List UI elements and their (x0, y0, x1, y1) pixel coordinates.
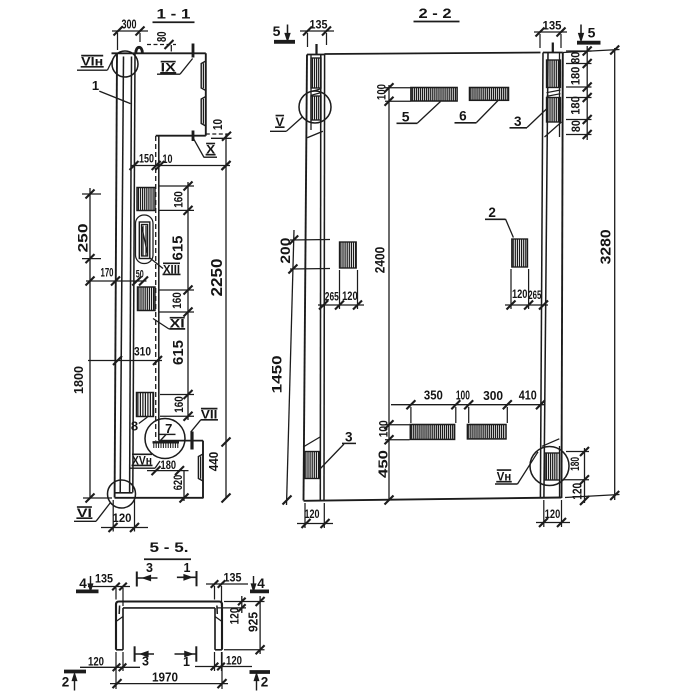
svg-text:120: 120 (305, 507, 320, 521)
svg-text:10: 10 (163, 152, 173, 166)
svg-text:3: 3 (514, 114, 522, 129)
svg-text:5: 5 (588, 24, 596, 40)
svg-text:120: 120 (88, 655, 104, 669)
svg-text:1970: 1970 (152, 670, 178, 685)
svg-text:300: 300 (122, 18, 137, 32)
svg-text:1800: 1800 (71, 366, 86, 394)
svg-text:160: 160 (170, 292, 184, 309)
svg-text:1: 1 (92, 78, 99, 93)
svg-text:1 - 1: 1 - 1 (157, 7, 192, 22)
svg-text:80: 80 (568, 52, 582, 64)
svg-text:180: 180 (568, 96, 582, 115)
svg-text:160: 160 (172, 191, 186, 208)
svg-text:3: 3 (146, 561, 153, 575)
svg-text:2: 2 (62, 675, 70, 690)
svg-text:3280: 3280 (597, 229, 614, 264)
svg-text:5 - 5.: 5 - 5. (150, 540, 189, 555)
svg-text:6: 6 (459, 108, 467, 123)
svg-text:160: 160 (172, 396, 186, 413)
svg-text:80: 80 (569, 120, 583, 132)
svg-text:8: 8 (131, 419, 138, 434)
svg-text:925: 925 (246, 612, 260, 632)
svg-text:615: 615 (171, 236, 187, 261)
svg-text:180: 180 (570, 457, 582, 471)
svg-text:5: 5 (402, 108, 410, 124)
svg-text:170: 170 (101, 266, 114, 280)
svg-text:2: 2 (488, 205, 496, 220)
svg-text:350: 350 (424, 389, 443, 403)
svg-text:620: 620 (171, 475, 185, 491)
svg-text:135: 135 (310, 18, 328, 32)
svg-text:2250: 2250 (209, 259, 226, 297)
svg-text:120: 120 (342, 289, 358, 303)
svg-text:2400: 2400 (372, 247, 387, 274)
svg-text:3: 3 (142, 654, 149, 668)
svg-text:10: 10 (211, 119, 225, 130)
svg-text:135: 135 (95, 572, 113, 586)
svg-text:100: 100 (376, 420, 390, 437)
svg-text:300: 300 (483, 389, 503, 403)
svg-text:135: 135 (543, 19, 562, 33)
svg-text:310: 310 (134, 345, 151, 359)
svg-text:120: 120 (226, 654, 242, 668)
svg-text:265: 265 (528, 288, 541, 302)
svg-text:1: 1 (184, 561, 191, 575)
svg-text:1: 1 (183, 655, 190, 669)
svg-text:100: 100 (456, 389, 470, 403)
svg-text:120: 120 (113, 511, 132, 525)
svg-text:80: 80 (155, 32, 169, 43)
svg-text:4: 4 (79, 576, 87, 591)
svg-text:250: 250 (74, 223, 90, 252)
svg-text:615: 615 (171, 340, 187, 365)
svg-text:100: 100 (375, 84, 389, 100)
svg-text:120: 120 (571, 483, 585, 500)
svg-text:5: 5 (273, 23, 281, 39)
svg-text:150: 150 (139, 152, 154, 166)
svg-text:410: 410 (519, 389, 537, 403)
svg-text:2 - 2: 2 - 2 (419, 5, 452, 21)
svg-text:135: 135 (224, 571, 242, 585)
svg-text:200: 200 (278, 238, 293, 264)
svg-text:1450: 1450 (269, 355, 285, 393)
svg-text:4: 4 (257, 576, 265, 591)
svg-text:3: 3 (345, 430, 353, 445)
svg-text:180: 180 (568, 66, 582, 85)
svg-text:450: 450 (376, 450, 391, 478)
svg-text:2: 2 (261, 675, 269, 690)
svg-text:440: 440 (207, 452, 221, 472)
svg-text:120: 120 (512, 287, 528, 301)
